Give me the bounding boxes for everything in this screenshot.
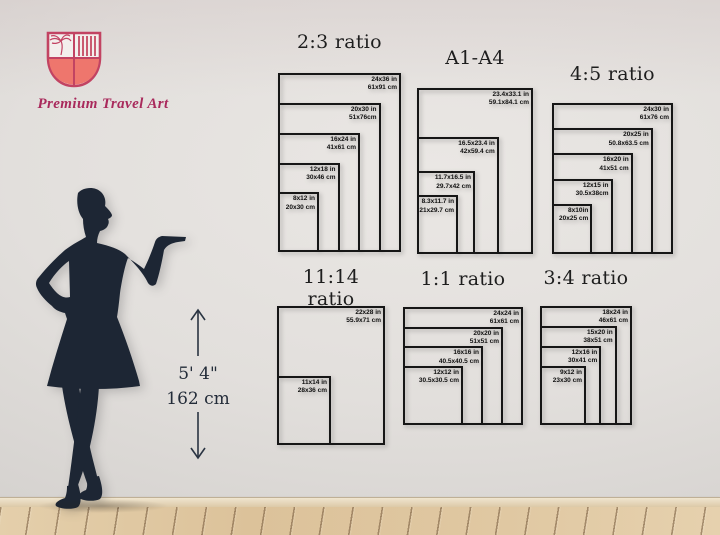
size-label: 22x28 in55.9x71 cm <box>346 309 381 326</box>
size-chart-1-1: 24x24 in61x61 cm20x20 in51x51 cm16x16 in… <box>403 307 523 425</box>
brand-shield-icon <box>45 30 103 90</box>
height-cm: 162 cm <box>160 387 236 412</box>
height-ft: 5' 4" <box>160 362 236 387</box>
size-label: 12x15 in30.5x38cm <box>576 182 609 199</box>
size-chart-3-4: 18x24 in46x61 cm15x20 in38x51 cm12x16 in… <box>540 306 632 425</box>
size-label: 24x30 in61x76 cm <box>640 106 669 123</box>
size-label: 15x20 in38x51 cm <box>583 329 612 346</box>
size-label: 12x12 in30.5x30.5 cm <box>419 369 459 386</box>
size-label: 11x14 in28x36 cm <box>298 379 327 396</box>
figure-shadow <box>38 499 168 513</box>
chart-title-2-3: 2:3 ratio <box>278 31 401 53</box>
size-label: 20x25 in50.8x63.5 cm <box>609 131 649 148</box>
down-arrow-icon <box>160 411 236 469</box>
chart-title-11-14: 11:14 ratio <box>277 266 385 310</box>
product-size-guide: Premium Travel Art 5' 4" 162 cm <box>0 0 720 535</box>
size-label: 8x10in20x25 cm <box>559 207 588 224</box>
size-label: 9x12 in23x30 cm <box>553 369 582 386</box>
size-label: 12x16 in30x41 cm <box>568 349 597 366</box>
size-label: 20x30 in51x76cm <box>349 106 376 123</box>
size-label: 18x24 in46x61 cm <box>599 309 628 326</box>
size-rect-9x12in: 9x12 in23x30 cm <box>540 366 586 426</box>
size-label: 24x36 in61x91 cm <box>368 76 397 93</box>
size-rect-8.3x11.7in: 8.3x11.7 in21x29.7 cm <box>417 195 458 254</box>
size-label: 24x24 in61x61 cm <box>490 310 519 327</box>
height-measure: 5' 4" 162 cm <box>160 299 236 474</box>
chart-title-4-5: 4:5 ratio <box>552 63 673 85</box>
size-label: 8x12 in20x30 cm <box>286 195 315 212</box>
size-label: 11.7x16.5 in29.7x42 cm <box>435 174 471 191</box>
size-label: 12x18 in30x46 cm <box>306 166 335 183</box>
brand-name: Premium Travel Art <box>18 96 188 113</box>
size-rect-12x12in: 12x12 in30.5x30.5 cm <box>403 366 463 425</box>
size-rect-11x14in: 11x14 in28x36 cm <box>277 376 331 446</box>
size-label: 16x20 in41x51 cm <box>599 156 628 173</box>
size-chart-a1-a4: 23.4x33.1 in59.1x84.1 cm16.5x23.4 in42x5… <box>417 88 533 254</box>
size-chart-4-5: 24x30 in61x76 cm20x25 in50.8x63.5 cm16x2… <box>552 103 673 254</box>
size-label: 16.5x23.4 in42x59.4 cm <box>458 140 495 157</box>
brand-logo: Premium Travel Art <box>42 28 162 118</box>
size-chart-2-3: 24x36 in61x91 cm20x30 in51x76cm16x24 in4… <box>278 73 401 252</box>
size-rect-8x10in: 8x10in20x25 cm <box>552 204 592 254</box>
size-rect-8x12in: 8x12 in20x30 cm <box>278 192 319 252</box>
size-label: 23.4x33.1 in59.1x84.1 cm <box>489 91 529 108</box>
size-label: 16x24 in41x61 cm <box>327 136 356 153</box>
size-label: 16x16 in40.5x40.5 cm <box>439 349 479 366</box>
chart-title-a1-a4: A1-A4 <box>417 47 533 69</box>
size-chart-11-14: 22x28 in55.9x71 cm11x14 in28x36 cm <box>277 306 385 445</box>
size-label: 20x20 in51x51 cm <box>470 330 499 347</box>
chart-title-3-4: 3:4 ratio <box>540 267 632 289</box>
size-label: 8.3x11.7 in21x29.7 cm <box>419 198 454 215</box>
up-arrow-icon <box>160 299 236 357</box>
chart-title-1-1: 1:1 ratio <box>403 268 523 290</box>
